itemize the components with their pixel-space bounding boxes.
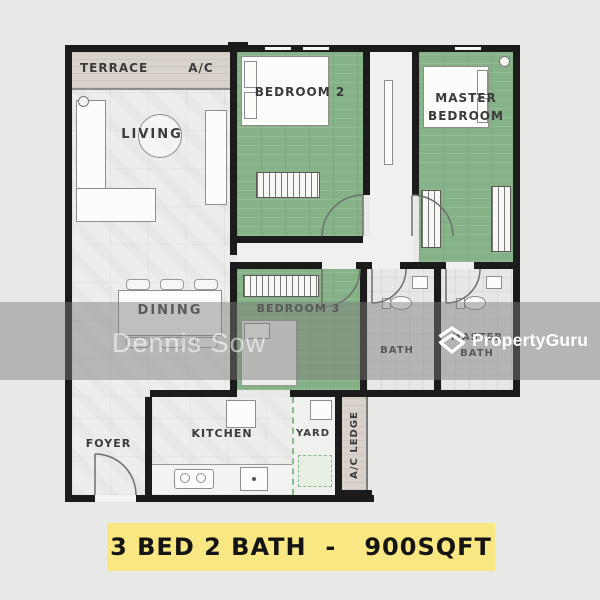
door-arc-entrance (95, 454, 136, 495)
agent-watermark: Dennis Sow (112, 328, 266, 359)
room-label-ac: A/C (178, 62, 224, 76)
door-arc-master-bath (446, 269, 480, 303)
floorplan: TERRACE A/C LIVING BEDROOM 2 MASTER BEDR… (60, 40, 526, 506)
room-label-kitchen: KITCHEN (152, 428, 292, 441)
room-label-master-bedroom: MASTER BEDROOM (419, 92, 513, 124)
door-arc-master-bedroom (412, 195, 453, 236)
propertyguru-wordmark: PropertyGuru (472, 330, 588, 351)
room-label-yard: YARD (290, 428, 336, 440)
watermark-band: Dennis Sow PropertyGuru (0, 302, 600, 380)
room-label-bedroom2: BEDROOM 2 (237, 86, 363, 100)
room-label-master-line1: MASTER (419, 92, 513, 106)
propertyguru-chevron-icon (437, 325, 467, 355)
room-label-foyer: FOYER (72, 438, 145, 451)
summary-banner: 3 BED 2 BATH - 900SQFT (107, 523, 495, 571)
door-arc-bedroom2 (322, 195, 363, 236)
room-label-living: LIVING (82, 128, 222, 143)
summary-banner-text: 3 BED 2 BATH - 900SQFT (110, 533, 492, 561)
room-label-master-line2: BEDROOM (419, 110, 513, 124)
floorplan-image: TERRACE A/C LIVING BEDROOM 2 MASTER BEDR… (0, 0, 600, 600)
propertyguru-logo: PropertyGuru (437, 324, 588, 356)
door-arc-bath (372, 269, 406, 303)
room-label-ac-ledge: A/C LEDGE (345, 400, 365, 490)
room-label-terrace: TERRACE (80, 62, 160, 76)
